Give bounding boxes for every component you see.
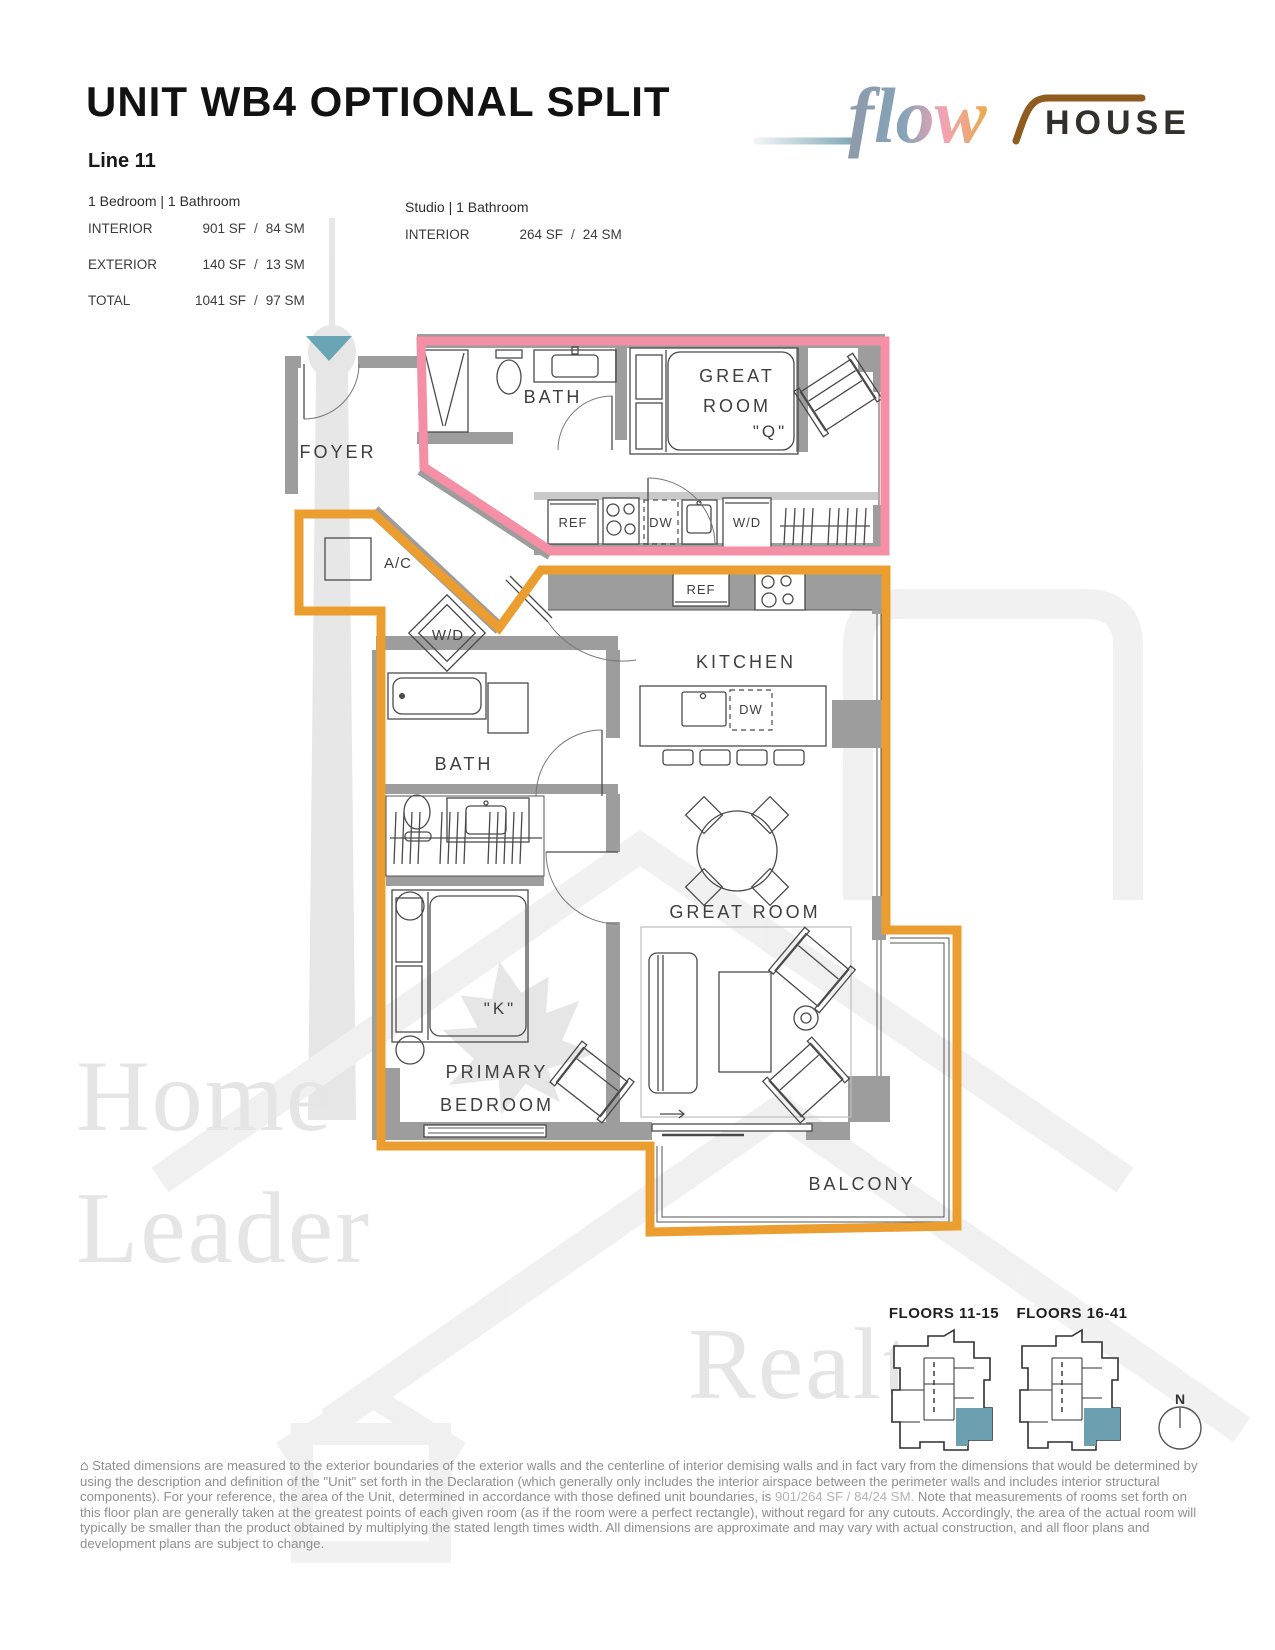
north-label: N (1175, 1391, 1185, 1407)
nightstand-1 (396, 892, 424, 920)
keyplan-left-title: FLOORS 11-15 (889, 1305, 999, 1322)
label-studio-great-1: GREAT (699, 366, 775, 386)
page-title: UNIT WB4 OPTIONAL SPLIT (86, 78, 671, 126)
watermark-word-home: Home (76, 1040, 333, 1153)
label-main-bath: BATH (435, 754, 494, 774)
flow-house-logo: flow HOUSE (757, 72, 1191, 159)
label-island-dw: DW (739, 702, 763, 717)
stat-row: TOTAL 1041 SF /97 SM (88, 287, 305, 323)
studio-unit-config: Studio | 1 Bathroom (405, 194, 622, 221)
stat-sm: 97 SM (266, 293, 305, 308)
stat-sep: / (252, 293, 266, 308)
stat-row: INTERIOR 901 SF /84 SM (88, 215, 305, 251)
watermark-cn-tower-antenna (329, 218, 335, 336)
coffee-table (719, 972, 771, 1072)
watermark-cn-tower-shaft (308, 372, 356, 1120)
label-primary-2: BEDROOM (440, 1095, 554, 1115)
studio-kitchenette (548, 498, 870, 548)
label-studio-bath: BATH (524, 387, 583, 407)
keyplan-right-title: FLOORS 16-41 (1016, 1305, 1127, 1322)
studio-toilet (496, 350, 522, 358)
disclaimer: ⌂ Stated dimensions are measured to the … (80, 1458, 1198, 1552)
main-unit-stats: 1 Bedroom | 1 Bathroom INTERIOR 901 SF /… (88, 188, 305, 323)
island-sink (682, 692, 726, 726)
sofa (649, 953, 697, 1093)
label-ac: A/C (384, 555, 412, 572)
stat-sf: 264 SF (493, 221, 569, 257)
stat-label: TOTAL (88, 287, 176, 323)
main-unit-areas: INTERIOR 901 SF /84 SM EXTERIOR 140 SF /… (88, 215, 305, 323)
logo-word: HOUSE (1045, 104, 1191, 142)
label-studio-dw: DW (649, 515, 673, 530)
stat-label: INTERIOR (88, 215, 176, 251)
stat-sep: / (569, 227, 583, 242)
stat-sf: 140 SF (176, 251, 252, 287)
stat-sep: / (252, 221, 266, 236)
primary-closet (386, 796, 544, 876)
disclaimer-area-values: 901/264 SF / 84/24 SM. (775, 1489, 914, 1504)
label-studio-wd: W/D (733, 515, 761, 530)
studio-unit-areas: INTERIOR 264 SF /24 SM (405, 221, 622, 257)
stat-sep: / (252, 257, 266, 272)
kitchen-island (640, 686, 826, 765)
label-balcony: BALCONY (808, 1174, 915, 1194)
floorplan-page: Home Leader Realty flow HOUSE (0, 0, 1275, 1650)
label-studio-ref: REF (559, 515, 588, 530)
studio-cooktop (603, 498, 639, 544)
stat-sf: 1041 SF (176, 287, 252, 323)
line-label: Line 11 (88, 150, 156, 173)
logo-script: flow (848, 72, 988, 159)
stat-sm: 84 SM (266, 221, 305, 236)
disclaimer-house-icon: ⌂ (80, 1457, 88, 1473)
stat-sf: 901 SF (176, 215, 252, 251)
label-main-ref: REF (687, 582, 716, 597)
main-toilet (404, 795, 430, 829)
label-primary-1: PRIMARY (446, 1062, 549, 1082)
label-primary-bed-size: "K" (484, 999, 516, 1018)
nightstand-2 (396, 1036, 424, 1064)
label-foyer: FOYER (299, 442, 376, 462)
keyplan-left (892, 1330, 992, 1450)
watermark-house-arch (858, 604, 1128, 900)
watermark-word-leader: Leader (76, 1172, 371, 1285)
label-kitchen: KITCHEN (696, 652, 796, 672)
stat-label: EXTERIOR (88, 251, 176, 287)
stat-row: EXTERIOR 140 SF /13 SM (88, 251, 305, 287)
studio-closet (780, 508, 870, 545)
main-unit-config: 1 Bedroom | 1 Bathroom (88, 188, 305, 215)
label-studio-bed-size: "Q" (753, 422, 787, 441)
studio-unit-stats: Studio | 1 Bathroom INTERIOR 264 SF /24 … (405, 194, 622, 257)
stat-sm: 24 SM (583, 227, 622, 242)
label-studio-great-2: ROOM (703, 396, 771, 416)
stat-label: INTERIOR (405, 221, 493, 257)
stat-sm: 13 SM (266, 257, 305, 272)
stat-row: INTERIOR 264 SF /24 SM (405, 221, 622, 257)
label-great-room: GREAT ROOM (669, 902, 820, 922)
plant (794, 1006, 818, 1030)
label-corridor-wd: W/D (432, 627, 464, 644)
